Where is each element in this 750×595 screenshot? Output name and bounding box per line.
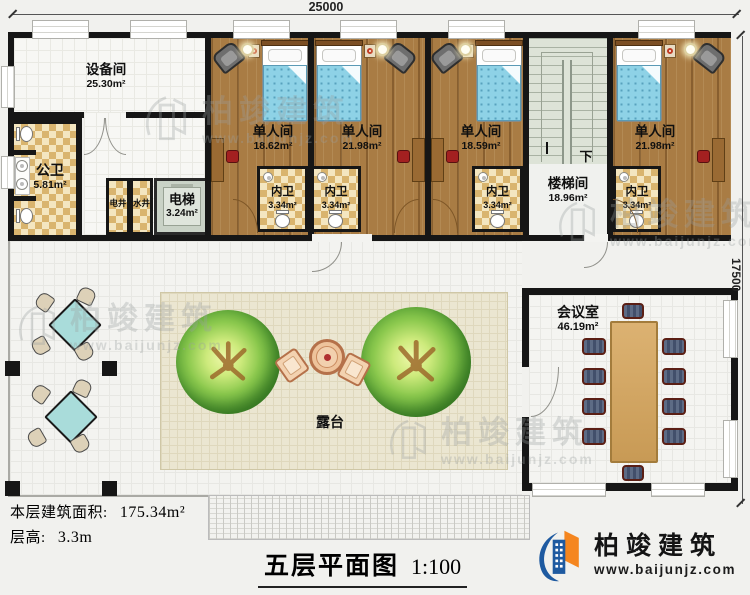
public-wc-label: 公卫 <box>20 162 80 179</box>
single-2-area: 21.98m² <box>322 140 402 153</box>
conference-chair <box>582 338 606 355</box>
window <box>1 66 15 108</box>
column <box>5 481 20 496</box>
column <box>102 481 117 496</box>
elevator-door <box>171 184 193 187</box>
door-opening <box>312 234 372 242</box>
drawing-title-text: 五层平面图 <box>264 546 399 582</box>
ensuite-3-area: 3.34m² <box>472 200 523 211</box>
window <box>532 483 606 497</box>
wall <box>522 417 529 491</box>
dimension-label-right: 17500 <box>729 258 743 291</box>
nightstand <box>664 44 676 58</box>
wall <box>14 196 36 201</box>
wall-lamp <box>459 43 472 56</box>
ensuite-2-area: 3.34m² <box>311 200 361 211</box>
conference-chair <box>582 368 606 385</box>
public-wc-area: 5.81m² <box>20 179 80 192</box>
window <box>638 20 695 39</box>
nightstand <box>364 44 376 58</box>
conference-chair <box>662 428 686 445</box>
meeting-area: 46.19m² <box>538 321 618 334</box>
desk-chair <box>697 150 710 163</box>
drawing-title: 五层平面图 1:100 <box>258 546 467 588</box>
floor-height-label: 层高: <box>10 530 46 546</box>
conference-chair <box>662 368 686 385</box>
tree <box>176 310 280 414</box>
toilet <box>490 210 505 228</box>
table-centerpiece <box>324 354 331 361</box>
single-3-area: 18.59m² <box>441 140 521 153</box>
single-4-label: 单人间 <box>615 124 695 140</box>
window <box>651 483 705 497</box>
window <box>723 420 738 478</box>
floor-area-label: 本层建筑面积: <box>10 505 108 521</box>
wall <box>523 38 529 235</box>
single-2-label: 单人间 <box>322 124 402 140</box>
column <box>5 361 20 376</box>
wall <box>126 112 205 118</box>
wall-lamp <box>684 43 697 56</box>
conference-chair <box>662 398 686 415</box>
column <box>102 361 117 376</box>
drawing-scale: 1:100 <box>411 554 461 580</box>
conference-chair <box>582 398 606 415</box>
paving-hatch <box>208 495 530 540</box>
wall <box>425 38 431 235</box>
ensuite-4-label: 内卫 <box>613 186 661 200</box>
window <box>448 20 505 39</box>
window <box>723 300 738 358</box>
dimension-line-top <box>12 14 739 15</box>
conference-chair <box>622 465 644 481</box>
window <box>1 156 15 189</box>
ensuite-4-area: 3.34m² <box>613 200 661 211</box>
dimension-tick <box>736 498 745 507</box>
equipment-area: 25.30m² <box>66 78 146 91</box>
floor-area-value: 175.34m² <box>120 504 185 521</box>
elevator-label: 电梯 <box>154 192 210 208</box>
sink <box>619 172 629 182</box>
wall <box>522 295 529 367</box>
desk <box>712 138 725 182</box>
single-1-label: 单人间 <box>228 124 318 140</box>
ensuite-1-area: 3.34m² <box>257 200 308 211</box>
brand-logo: 柏竣建筑 www.baijunjz.com <box>532 526 736 584</box>
wall-lamp <box>376 43 389 56</box>
floor-plan-canvas: 25000 17500 下 电井 水井 电梯 3.24m² 公 <box>0 0 750 595</box>
conference-chair <box>662 338 686 355</box>
brand-name: 柏竣建筑 <box>594 534 736 559</box>
ensuite-1-label: 内卫 <box>257 186 308 200</box>
desk <box>211 138 224 182</box>
ensuite-3-label: 内卫 <box>472 186 523 200</box>
toilet <box>16 208 33 224</box>
stair-outline <box>541 52 593 162</box>
electric-shaft-label: 电井 <box>106 198 130 208</box>
dimension-tick <box>736 30 745 39</box>
ensuite-2-label: 内卫 <box>311 186 361 200</box>
stair-hall-label: 楼梯间 <box>529 176 607 192</box>
brand-logo-icon <box>532 526 586 584</box>
dimension-label-top: 25000 <box>296 0 356 14</box>
door-swing <box>584 242 608 268</box>
toilet <box>16 126 33 142</box>
equipment-label: 设备间 <box>66 62 146 78</box>
bed <box>316 42 362 122</box>
sink <box>263 172 273 182</box>
single-4-area: 21.98m² <box>615 140 695 153</box>
stair-arrow <box>546 142 548 154</box>
terrace-label: 露台 <box>295 414 365 431</box>
conference-chair <box>582 428 606 445</box>
water-shaft-label: 水井 <box>130 198 153 208</box>
window <box>233 20 290 39</box>
wall <box>522 288 738 295</box>
bed <box>616 42 662 122</box>
single-1-area: 18.62m² <box>228 140 318 153</box>
window <box>130 20 187 39</box>
window <box>340 20 397 39</box>
wall-lamp <box>241 43 254 56</box>
door-opening <box>584 234 608 242</box>
sink <box>478 172 488 182</box>
stair-hall-area: 18.96m² <box>529 192 607 205</box>
bed <box>476 42 522 122</box>
conference-table <box>610 321 658 463</box>
floor-area-line: 本层建筑面积: 175.34m² <box>10 501 185 522</box>
toilet <box>275 210 290 228</box>
floor-height-line: 层高: 3.3m <box>10 526 92 547</box>
single-3-label: 单人间 <box>441 124 521 140</box>
sink <box>317 172 327 182</box>
tree <box>361 307 471 417</box>
brand-site: www.baijunjz.com <box>594 562 736 577</box>
elevator-area: 3.24m² <box>154 208 210 220</box>
wall <box>14 150 36 155</box>
desk <box>412 138 425 182</box>
window <box>32 20 89 39</box>
conference-chair <box>622 303 644 319</box>
stair-down-label: 下 <box>566 149 606 165</box>
wall <box>14 112 84 118</box>
toilet <box>328 210 343 228</box>
floor-height-value: 3.3m <box>58 529 92 546</box>
meeting-label: 会议室 <box>538 304 618 321</box>
bed <box>262 42 308 122</box>
